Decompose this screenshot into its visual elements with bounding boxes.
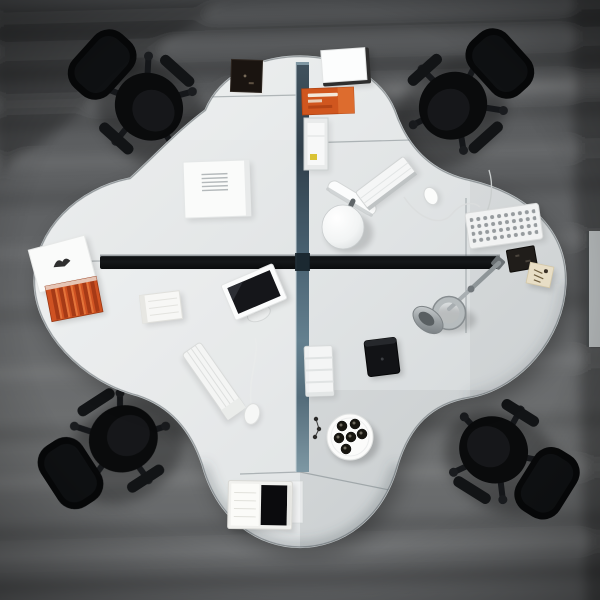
photo-vignette [0, 0, 600, 600]
photo-office-workstation: Overhead photograph of a four-person clo… [0, 0, 600, 600]
scene-canvas [0, 0, 600, 600]
